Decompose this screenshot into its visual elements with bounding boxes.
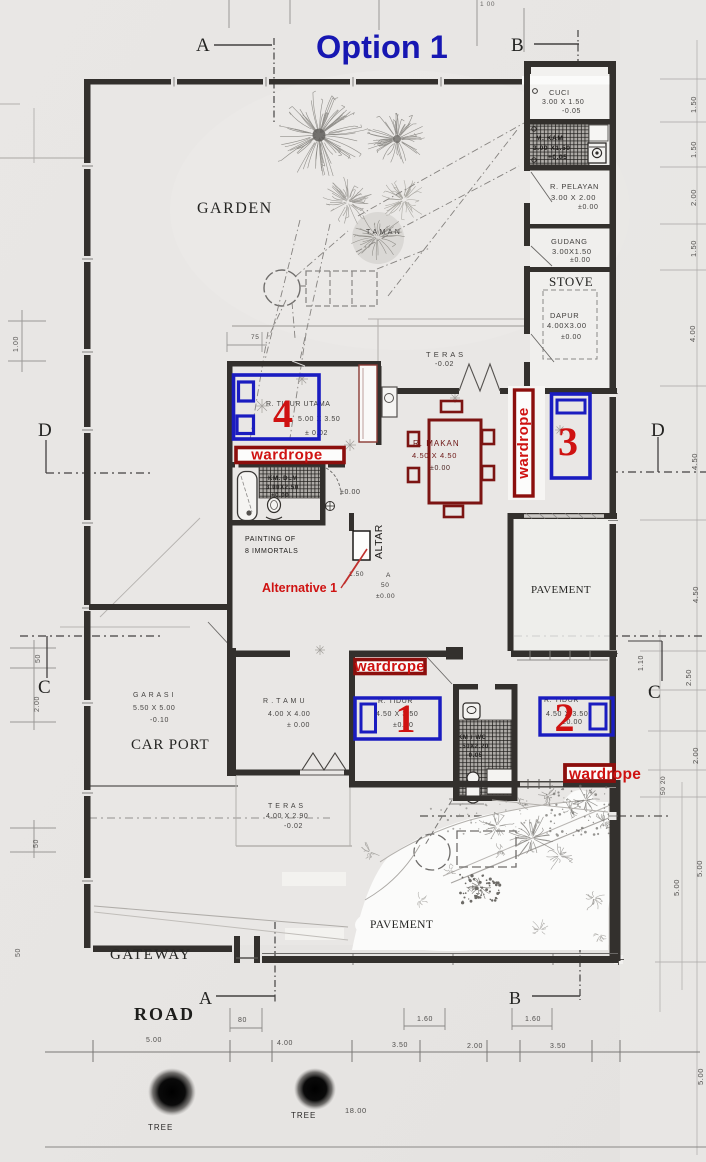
svg-text:-0.05: -0.05	[466, 753, 483, 759]
svg-text:1.50: 1.50	[689, 141, 698, 158]
svg-text:4.00: 4.00	[688, 325, 697, 342]
svg-text:4.50 X 4.50: 4.50 X 4.50	[412, 451, 457, 460]
svg-text:50: 50	[381, 582, 389, 589]
svg-text:GUDANG: GUDANG	[551, 237, 588, 246]
svg-text:Alternative 1: Alternative 1	[262, 581, 337, 595]
svg-text:2.50X2.20: 2.50X2.20	[456, 744, 489, 750]
svg-text:50: 50	[15, 948, 22, 957]
svg-text:80: 80	[238, 1017, 247, 1024]
svg-text:±0.00: ±0.00	[376, 593, 395, 600]
svg-text:CUCI: CUCI	[549, 88, 570, 97]
svg-text:+0.05: +0.05	[548, 154, 567, 161]
svg-text:A: A	[386, 572, 391, 579]
svg-text:1: 1	[396, 696, 416, 741]
svg-text:+0.00: +0.00	[271, 493, 289, 499]
svg-text:50: 50	[35, 654, 42, 663]
svg-text:T E R A S: T E R A S	[268, 803, 304, 810]
svg-text:5.00: 5.00	[672, 879, 681, 896]
svg-text:8 IMMORTALS: 8 IMMORTALS	[245, 548, 298, 555]
svg-text:75: 75	[251, 334, 259, 341]
svg-text:2.00: 2.00	[467, 1043, 483, 1050]
svg-text:3.00 X1.50: 3.00 X1.50	[533, 145, 570, 152]
svg-text:C: C	[648, 682, 661, 703]
svg-text:PAVEMENT: PAVEMENT	[370, 919, 433, 931]
svg-text:4.50: 4.50	[690, 453, 699, 470]
svg-text:B: B	[509, 988, 521, 1008]
svg-text:4.00 X 4.00: 4.00 X 4.00	[268, 711, 310, 718]
svg-text:± 0.02: ± 0.02	[305, 430, 328, 437]
svg-text:3.00 X 2.00: 3.00 X 2.00	[551, 193, 596, 202]
svg-text:KM. DLM: KM. DLM	[268, 476, 298, 482]
svg-text:A: A	[199, 988, 212, 1008]
svg-text:2.00: 2.00	[691, 747, 700, 764]
svg-text:R . T A M U: R . T A M U	[263, 698, 305, 705]
svg-text:1.10: 1.10	[638, 655, 645, 671]
svg-text:GARDEN: GARDEN	[197, 200, 273, 217]
svg-text:3: 3	[558, 419, 578, 464]
svg-text:5.00: 5.00	[696, 1068, 705, 1085]
svg-text:KM / WC: KM / WC	[458, 735, 487, 741]
svg-text:4.00: 4.00	[277, 1040, 293, 1047]
svg-text:50: 50	[33, 839, 40, 848]
svg-text:ALTAR: ALTAR	[373, 524, 385, 559]
svg-text:wardrope: wardrope	[354, 658, 425, 675]
svg-text:1.50: 1.50	[689, 96, 698, 113]
svg-text:ROAD: ROAD	[134, 1004, 195, 1024]
svg-text:T A M A N: T A M A N	[366, 229, 400, 236]
svg-text:wardrope: wardrope	[250, 447, 323, 464]
svg-text:A: A	[196, 35, 210, 56]
svg-text:5.00: 5.00	[695, 860, 704, 877]
svg-text:STOVE: STOVE	[549, 274, 593, 289]
svg-text:-0.02: -0.02	[284, 823, 303, 830]
svg-text:3.00 X 1.50: 3.00 X 1.50	[542, 99, 584, 106]
svg-text:DAPUR: DAPUR	[550, 311, 579, 320]
svg-text:GATEWAY: GATEWAY	[110, 947, 192, 963]
svg-text:±0.00: ±0.00	[340, 489, 360, 496]
svg-text:3.50: 3.50	[392, 1042, 408, 1049]
svg-text:CAR PORT: CAR PORT	[131, 737, 209, 753]
svg-text:2.00: 2.00	[689, 189, 698, 206]
svg-text:2: 2	[555, 695, 575, 740]
svg-text:2.00: 2.00	[34, 696, 41, 712]
svg-text:±0.00: ±0.00	[430, 465, 450, 472]
svg-text:C: C	[38, 677, 51, 698]
svg-text:T E R A S: T E R A S	[426, 350, 464, 359]
svg-text:±0.00: ±0.00	[578, 204, 598, 211]
svg-text:1.50: 1.50	[689, 240, 698, 257]
svg-text:1.00: 1.00	[13, 336, 20, 352]
svg-text:Option 1: Option 1	[316, 29, 448, 65]
svg-text:D: D	[38, 420, 52, 441]
svg-text:R. PELAYAN: R. PELAYAN	[550, 182, 599, 191]
svg-text:TREE: TREE	[148, 1123, 173, 1132]
svg-text:4.00X3.00: 4.00X3.00	[547, 321, 587, 330]
svg-text:PAVEMENT: PAVEMENT	[531, 584, 591, 596]
svg-text:3.00X1.50: 3.00X1.50	[552, 247, 592, 256]
svg-text:4.50: 4.50	[691, 586, 700, 603]
svg-text:1.60: 1.60	[417, 1016, 433, 1023]
svg-text:wardrope: wardrope	[568, 766, 641, 783]
svg-text:3.50: 3.50	[550, 1043, 566, 1050]
svg-text:G A R A S I: G A R A S I	[133, 692, 174, 699]
svg-text:2.50: 2.50	[684, 669, 693, 686]
svg-text:5.50 X 5.00: 5.50 X 5.00	[133, 705, 175, 712]
svg-text:-0.02: -0.02	[435, 361, 454, 368]
svg-text:B: B	[511, 35, 524, 56]
svg-text:18.00: 18.00	[345, 1106, 367, 1115]
svg-text:4: 4	[273, 391, 293, 436]
svg-text:PAINTING OF: PAINTING OF	[245, 536, 296, 543]
svg-text:1.60: 1.60	[525, 1016, 541, 1023]
svg-text:50 20: 50 20	[660, 776, 667, 795]
svg-text:3.00X2.50: 3.00X2.50	[266, 485, 299, 491]
svg-text:±0.00: ±0.00	[570, 257, 590, 264]
svg-text:wardrope: wardrope	[515, 407, 532, 480]
svg-text:-0.10: -0.10	[150, 717, 169, 724]
svg-text:1 00: 1 00	[480, 1, 495, 8]
svg-text:M. KAM: M. KAM	[536, 135, 563, 142]
svg-text:4.00 X 2.90: 4.00 X 2.90	[266, 813, 308, 820]
svg-text:±0.00: ±0.00	[561, 334, 581, 341]
svg-text:TREE: TREE	[291, 1111, 316, 1120]
svg-text:± 0.00: ± 0.00	[287, 722, 310, 729]
svg-text:-0.05: -0.05	[562, 108, 581, 115]
svg-text:5.00: 5.00	[146, 1037, 162, 1044]
